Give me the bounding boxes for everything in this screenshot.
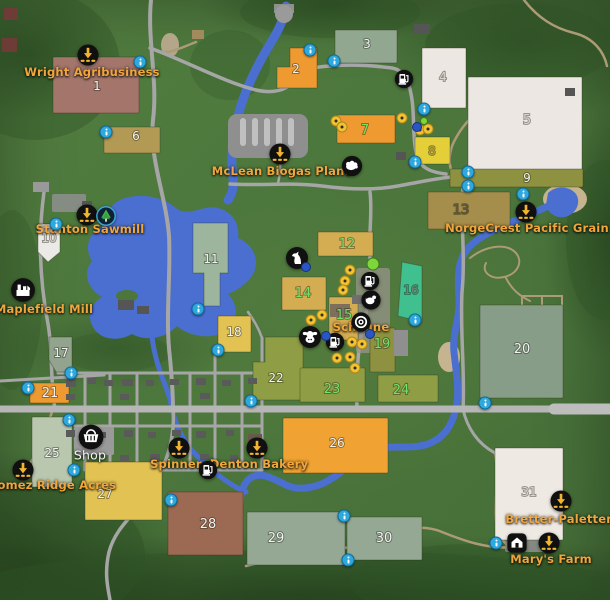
info-marker-icon[interactable] <box>338 510 351 523</box>
bale-marker-icon <box>345 352 356 363</box>
map-overlay: Wright AgribusinessMcLean Biogas PlantSt… <box>0 0 610 600</box>
info-marker-icon[interactable] <box>462 180 475 193</box>
mclean-sell-icon[interactable] <box>269 143 292 166</box>
spinnerei-sell-icon[interactable] <box>168 437 191 460</box>
info-marker-icon[interactable] <box>517 188 530 201</box>
farm-map: 1234567891011121314151617181920212223242… <box>0 0 610 600</box>
label-maplefield: Maplefield Mill <box>0 302 93 316</box>
gomez-sell-icon[interactable] <box>12 459 35 482</box>
bale-marker-icon <box>345 265 356 276</box>
denton-sell-icon[interactable] <box>246 437 269 460</box>
bale-marker-icon <box>397 113 408 124</box>
bretter-sell-icon[interactable] <box>550 490 573 513</box>
bale-marker-icon <box>338 285 349 296</box>
sheep-pasture-icon[interactable] <box>341 155 363 177</box>
bale-marker-icon <box>317 310 328 321</box>
maplefield-mill-icon[interactable] <box>10 277 36 303</box>
water-marker-icon <box>321 331 331 341</box>
info-marker-icon[interactable] <box>418 103 431 116</box>
bale-marker-icon <box>423 124 434 135</box>
info-marker-icon[interactable] <box>304 44 317 57</box>
info-marker-icon[interactable] <box>409 314 422 327</box>
cow-barn-icon[interactable] <box>298 325 322 349</box>
fuel-scheune-north-icon[interactable] <box>360 271 380 291</box>
water-marker-icon <box>365 329 375 339</box>
bale-marker-icon <box>332 353 343 364</box>
info-marker-icon[interactable] <box>63 414 76 427</box>
info-marker-icon[interactable] <box>50 218 63 231</box>
info-marker-icon[interactable] <box>409 156 422 169</box>
label-mclean: McLean Biogas Plant <box>212 164 350 178</box>
info-marker-icon[interactable] <box>134 56 147 69</box>
marys-barn-icon[interactable] <box>506 532 528 554</box>
info-marker-icon[interactable] <box>212 344 225 357</box>
fuel-north-icon[interactable] <box>394 69 414 89</box>
info-marker-icon[interactable] <box>462 166 475 179</box>
info-marker-icon[interactable] <box>22 382 35 395</box>
marys-sell-icon[interactable] <box>538 532 561 555</box>
info-marker-icon[interactable] <box>100 126 113 139</box>
label-bretter: Bretter-Paletten <box>505 512 610 526</box>
bale-marker-icon <box>350 363 361 374</box>
green-marker-icon <box>367 258 380 271</box>
wright-sell-icon[interactable] <box>77 44 100 67</box>
info-marker-icon[interactable] <box>479 397 492 410</box>
info-marker-icon[interactable] <box>245 395 258 408</box>
bale-marker-icon <box>337 122 348 133</box>
bale-marker-icon <box>357 339 368 350</box>
info-marker-icon[interactable] <box>342 554 355 567</box>
water-marker-icon <box>301 262 311 272</box>
shop-cart-icon[interactable] <box>78 424 105 451</box>
info-marker-icon[interactable] <box>490 537 503 550</box>
info-marker-icon[interactable] <box>192 303 205 316</box>
fuel-town-icon[interactable] <box>198 460 218 480</box>
bale-marker-icon <box>306 315 317 326</box>
info-marker-icon[interactable] <box>328 55 341 68</box>
info-marker-icon[interactable] <box>68 464 81 477</box>
info-marker-icon[interactable] <box>165 494 178 507</box>
sawmill-tree-icon[interactable] <box>96 206 117 227</box>
green-marker-icon <box>420 117 428 125</box>
info-marker-icon[interactable] <box>65 367 78 380</box>
chicken-coop-icon[interactable] <box>361 290 382 311</box>
norgecrest-sell-icon[interactable] <box>515 201 538 224</box>
